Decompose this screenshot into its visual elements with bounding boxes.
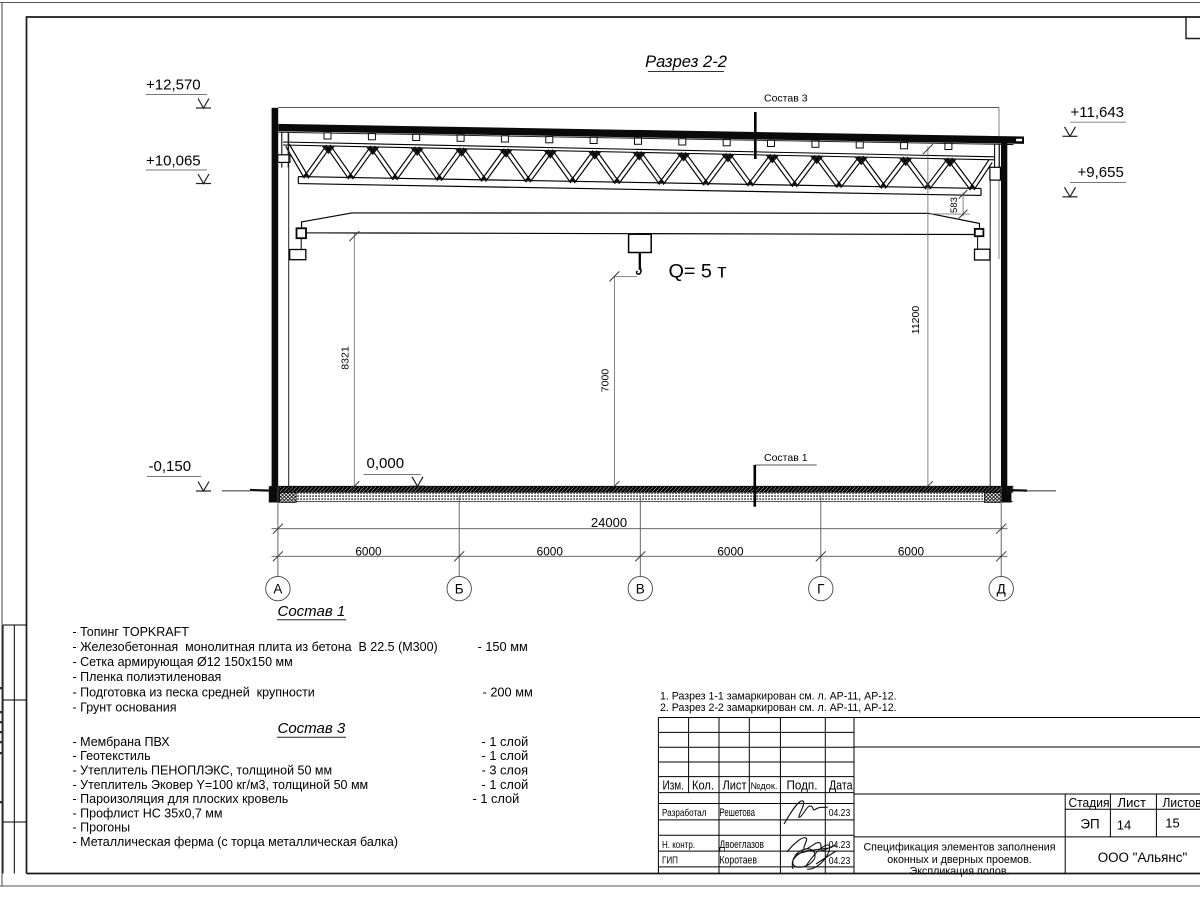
svg-text:6000: 6000 (537, 544, 564, 558)
svg-text:- Железобетонная монолитная п: - Железобетонная монолитная плита из бет… (73, 640, 438, 654)
svg-text:04.23: 04.23 (829, 856, 851, 867)
svg-text:- Утеплитель Эковер Y=100 кг/м: - Утеплитель Эковер Y=100 кг/м3, толщино… (73, 778, 369, 792)
svg-text:+11,643: +11,643 (1071, 104, 1125, 121)
svg-text:- 1 слой: - 1 слой (482, 748, 529, 763)
svg-text:В: В (636, 581, 645, 596)
svg-text:Экспликация полов.: Экспликация полов. (910, 865, 1010, 877)
svg-text:Лист: Лист (723, 778, 747, 793)
svg-text:04.23: 04.23 (829, 840, 851, 851)
svg-text:- Подготовка из песка средней: - Подготовка из песка средней крупности (73, 685, 315, 699)
svg-text:Н. контр.: Н. контр. (662, 840, 695, 851)
svg-text:Дата: Дата (829, 778, 853, 793)
svg-text:11200: 11200 (910, 306, 922, 335)
svg-text:- 150 мм: - 150 мм (478, 639, 528, 654)
svg-text:+10,065: +10,065 (146, 153, 201, 170)
svg-text:- 1 слой: - 1 слой (482, 734, 529, 749)
svg-text:Двоеглазов: Двоеглазов (720, 839, 765, 851)
svg-text:Коротаев: Коротаев (720, 855, 758, 867)
svg-text:ГИП: ГИП (662, 856, 678, 867)
svg-text:Разработал: Разработал (662, 807, 707, 819)
svg-text:Состав 3: Состав 3 (764, 93, 808, 105)
svg-text:- 1 слой: - 1 слой (473, 791, 520, 806)
svg-text:+9,655: +9,655 (1078, 164, 1124, 181)
svg-text:2. Разрез 2-2 замаркирован см.: 2. Разрез 2-2 замаркирован см. л. АР-11,… (660, 702, 897, 714)
svg-text:+12,570: +12,570 (146, 77, 201, 94)
svg-text:- Геотекстиль: - Геотекстиль (73, 749, 151, 763)
svg-text:Состав 3: Состав 3 (278, 720, 346, 737)
svg-text:Изм.: Изм. (663, 778, 685, 793)
svg-text:Q= 5 т: Q= 5 т (669, 261, 727, 283)
svg-text:оконных и дверных проемов.: оконных и дверных проемов. (887, 854, 1032, 866)
svg-text:Г: Г (817, 581, 825, 596)
svg-text:583: 583 (949, 197, 960, 213)
svg-text:- Топинг TOPKRAFT: - Топинг TOPKRAFT (73, 625, 190, 639)
svg-text:6000: 6000 (898, 544, 925, 558)
svg-text:ООО "Альянс": ООО "Альянс" (1098, 850, 1188, 865)
svg-text:Стадия: Стадия (1069, 795, 1110, 810)
svg-text:0,000: 0,000 (367, 455, 405, 472)
svg-text:- 1 слой: - 1 слой (482, 777, 529, 792)
svg-text:- Мембрана ПВХ: - Мембрана ПВХ (73, 735, 171, 749)
svg-text:- Профлист НС 35х0,7 мм: - Профлист НС 35х0,7 мм (73, 806, 223, 820)
svg-text:15: 15 (1165, 816, 1179, 831)
svg-text:Б: Б (455, 581, 464, 596)
svg-text:- Грунт основания: - Грунт основания (73, 700, 177, 714)
svg-text:6000: 6000 (717, 544, 744, 558)
svg-text:- Сетка армирующая Ø12 150х150: - Сетка армирующая Ø12 150х150 мм (73, 655, 293, 669)
svg-text:- Пленка полиэтиленовая: - Пленка полиэтиленовая (73, 670, 222, 684)
svg-text:04.23: 04.23 (829, 808, 851, 819)
svg-text:6000: 6000 (355, 544, 382, 558)
svg-text:Состав 1: Состав 1 (764, 452, 808, 464)
svg-text:7000: 7000 (599, 369, 611, 393)
svg-text:Подп.: Подп. (787, 778, 818, 793)
svg-text:Д: Д (997, 581, 1006, 596)
svg-text:ЭП: ЭП (1080, 817, 1099, 832)
svg-text:Разрез 2-2: Разрез 2-2 (645, 53, 727, 71)
svg-text:- Пароизоляция для плоских кро: - Пароизоляция для плоских кровель (73, 792, 289, 806)
svg-text:-0,150: -0,150 (149, 458, 192, 475)
svg-text:Решетова: Решетова (720, 807, 756, 819)
svg-text:Листов: Листов (1163, 795, 1200, 810)
svg-text:- Утеплитель ПЕНОПЛЭКС, толщин: - Утеплитель ПЕНОПЛЭКС, толщиной 50 мм (73, 764, 333, 778)
svg-text:- 200 мм: - 200 мм (483, 684, 533, 699)
svg-text:24000: 24000 (591, 515, 627, 530)
svg-text:- 3 слоя: - 3 слоя (482, 763, 529, 778)
svg-text:А: А (273, 581, 282, 596)
svg-text:Спецификация элементов заполне: Спецификация элементов заполнения (863, 841, 1055, 853)
svg-text:- Прогоны: - Прогоны (73, 821, 131, 835)
svg-text:- Металлическая ферма (с торца: - Металлическая ферма (с торца металличе… (73, 835, 399, 849)
svg-text:Кол.: Кол. (692, 778, 714, 793)
svg-text:№док.: №док. (751, 781, 778, 792)
svg-text:8321: 8321 (340, 346, 352, 370)
svg-text:14: 14 (1117, 818, 1131, 833)
svg-text:Лист: Лист (1118, 795, 1147, 810)
svg-text:Состав 1: Состав 1 (278, 603, 346, 620)
svg-text:1. Разрез 1-1 замаркирован см.: 1. Разрез 1-1 замаркирован см. л. АР-11,… (660, 691, 897, 703)
